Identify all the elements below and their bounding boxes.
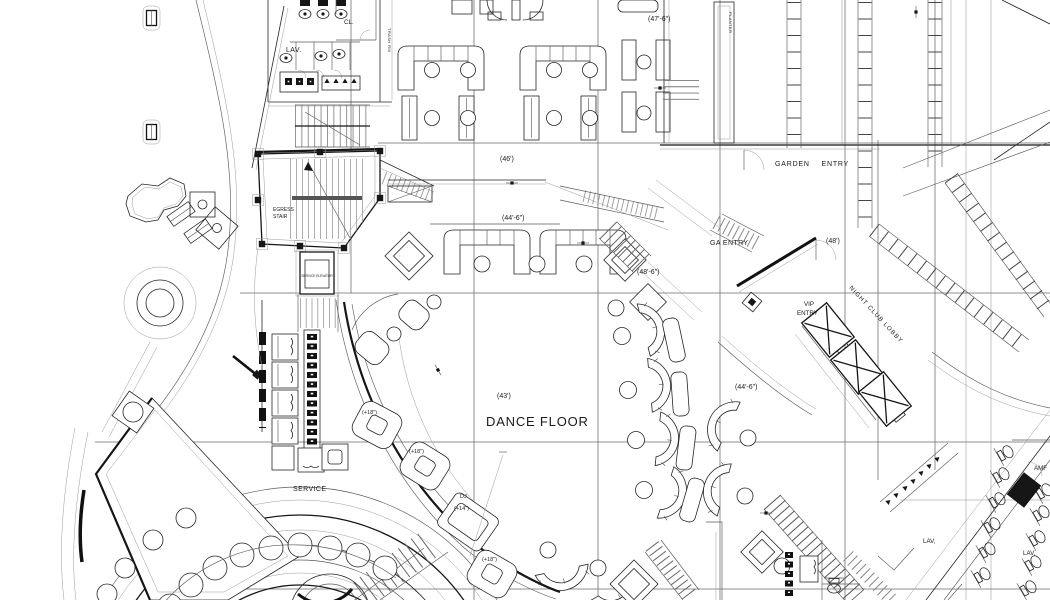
floor-plan-sheet: (47'-6") (46') (44'-6") (48'-6") (48') (… — [0, 0, 1050, 600]
sink-counter — [280, 72, 318, 92]
service-booth — [272, 362, 298, 388]
toilet-icon — [976, 538, 999, 563]
toilet-icon — [315, 52, 327, 61]
promenade-walls — [388, 180, 668, 230]
service-booth — [272, 334, 298, 360]
elev-46-label: (46') — [500, 156, 514, 163]
plus18-w-label: (+18") — [409, 449, 424, 455]
vip-entry-label-line2: ENTRY — [797, 310, 818, 317]
urinal-row — [322, 76, 360, 90]
toilet-icon — [1030, 501, 1050, 526]
garden-entry-label: GARDEN ENTRY — [775, 161, 849, 168]
toilet-icon — [317, 10, 329, 19]
elev-44-6-e-label: (44'-6") — [735, 384, 758, 391]
service-label: SERVICE — [293, 486, 326, 493]
egress-stair-label-line2: STAIR — [273, 214, 288, 220]
toilet-icon — [1026, 526, 1049, 551]
bar-counter-equipment — [304, 330, 320, 456]
lavatories-se — [878, 410, 1050, 600]
planter-rock-feature — [126, 178, 212, 243]
ga-entry-label: GA ENTRY — [710, 240, 748, 247]
plus18-nw-label: (+18") — [362, 410, 377, 416]
plus18-sw-label: (+18") — [482, 557, 497, 563]
toilet-icon — [971, 563, 994, 588]
elev-44-6-nw-label: (44'-6") — [502, 215, 525, 222]
vip-entry-label-line1: VIP — [804, 301, 814, 308]
dance-floor-ring — [336, 222, 706, 600]
curtain-wall-ladder — [787, 0, 801, 148]
restrooms-nw — [252, 0, 392, 170]
toilet-icon — [335, 10, 347, 19]
floor-plan-canvas: (47'-6") (46') (44'-6") (48'-6") (48') (… — [0, 0, 1050, 600]
egress-stair-label-line1: EGRESS — [273, 207, 295, 213]
toilet-icon — [280, 54, 292, 63]
toilet-icon — [990, 463, 1013, 488]
south-center-booths — [697, 393, 892, 600]
direction-arrow-bar — [233, 356, 262, 380]
column-symbol-lower — [143, 120, 160, 144]
service-elevator-label: SERVICE ELEVATOR — [301, 274, 333, 278]
vip-elevator-bank — [795, 303, 913, 429]
banquette-hall-north — [398, 0, 681, 143]
night-club-lobby-label: NIGHT CLUB LOBBY — [848, 285, 905, 345]
lav-se-upper-label: LAV, — [923, 538, 936, 545]
toilet-icon — [333, 50, 345, 59]
ramp-chevron-band — [880, 443, 958, 512]
toilet-icon — [299, 10, 311, 19]
elev-48-6-label: (48'-6") — [637, 269, 660, 276]
amf-label: AMF — [1034, 465, 1047, 472]
podium-marker — [742, 292, 762, 312]
closet-label: CL. — [344, 19, 354, 26]
elev-43-label: (43') — [497, 393, 511, 400]
plus14-dj-label: (+14") — [454, 506, 469, 512]
column-pads — [190, 192, 238, 249]
planter-label: PLANTER — [728, 12, 733, 33]
corner-diagonals — [903, 0, 1050, 196]
garden-entry-zone — [660, 0, 1050, 228]
dj-label: DJ — [460, 494, 467, 500]
column-symbol-upper — [143, 6, 160, 30]
service-booth — [272, 418, 298, 444]
dj-booth — [435, 491, 501, 554]
lav-se-lower-label: LAV, — [1023, 550, 1036, 557]
toilet-icon — [994, 441, 1017, 466]
dance-floor-label: DANCE FLOOR — [486, 414, 589, 429]
toilet-icon — [1017, 576, 1040, 600]
curtain-wall-ladder — [858, 0, 872, 228]
elev-48-label: (48') — [826, 238, 840, 245]
trash-room-label: TRASH RM — [387, 28, 392, 52]
lav-nw-label: LAV. — [286, 47, 302, 54]
service-booth — [272, 390, 298, 416]
service-elevator — [296, 250, 338, 332]
elev-47-6-label: (47'-6") — [648, 16, 671, 23]
